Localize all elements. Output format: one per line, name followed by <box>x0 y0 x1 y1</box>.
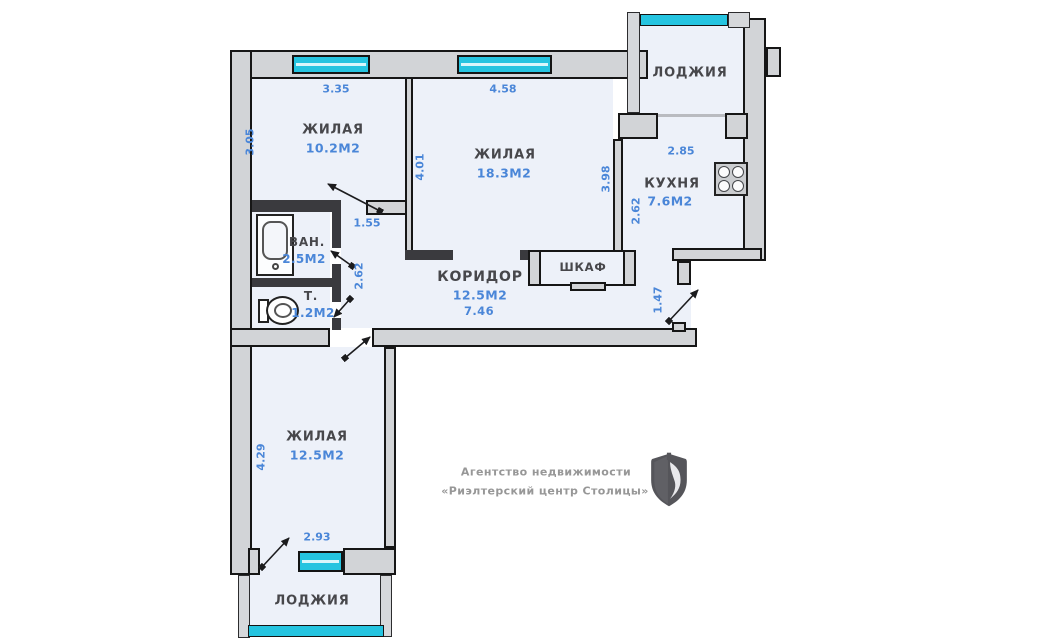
room-label-closet: ШКАФ <box>559 260 606 274</box>
room-label-loggia-top: ЛОДЖИЯ <box>652 66 727 81</box>
door-arrow-balcony <box>262 538 289 567</box>
room-area-kitchen: 7.6М2 <box>647 194 692 209</box>
dimension-label: 3.35 <box>322 83 349 96</box>
room-label-loggia-bottom: ЛОДЖИЯ <box>274 594 349 609</box>
dimension-label: 2.93 <box>303 531 330 544</box>
door-arrow-living-small <box>328 184 380 211</box>
room-label-bathroom: ВАН. <box>289 235 325 249</box>
room-label-living-bottom: ЖИЛАЯ <box>286 430 348 445</box>
dimension-label: 1.55 <box>353 217 380 230</box>
dimension-label: 4.29 <box>255 443 268 470</box>
dimension-label: 1.47 <box>652 286 665 313</box>
room-area-living-bottom: 12.5М2 <box>290 448 344 463</box>
door-arrow-bathroom <box>331 251 352 266</box>
floor-plan-canvas: ЛОДЖИЯ ЖИЛАЯ 10.2М2 ЖИЛАЯ 18.3М2 КУХНЯ 7… <box>0 0 1044 644</box>
door-arrows <box>0 0 1044 644</box>
agency-name-line1: Агентство недвижимости <box>461 466 631 479</box>
room-label-living-small: ЖИЛАЯ <box>302 123 364 138</box>
agency-shield-logo <box>648 452 690 508</box>
agency-name-line2: «Риэлтерский центр Столицы» <box>441 485 648 498</box>
dimension-label: 4.01 <box>414 153 427 180</box>
dimension-label: 2.85 <box>667 145 694 158</box>
room-area-toilet: 1.2М2 <box>291 306 335 320</box>
room-label-corridor: КОРИДОР <box>437 269 523 285</box>
room-label-living-large: ЖИЛАЯ <box>474 148 536 163</box>
room-length-corridor: 7.46 <box>464 304 494 318</box>
room-area-bathroom: 2.5М2 <box>282 252 326 266</box>
room-area-living-large: 18.3М2 <box>477 166 531 181</box>
dimension-label: 2.62 <box>630 197 643 224</box>
room-label-kitchen: КУХНЯ <box>644 177 700 192</box>
room-area-corridor: 12.5М2 <box>453 288 507 303</box>
door-arrow-entry <box>669 290 698 321</box>
dimension-label: 3.05 <box>244 128 257 155</box>
room-label-toilet: Т. <box>304 289 318 303</box>
dimension-label: 3.98 <box>600 165 613 192</box>
dimension-label: 4.58 <box>489 83 516 96</box>
door-arrow-living-bottom <box>345 337 370 358</box>
door-arrow-toilet <box>334 299 350 317</box>
dimension-label: 2.62 <box>353 262 366 289</box>
room-area-living-small: 10.2М2 <box>306 141 360 156</box>
